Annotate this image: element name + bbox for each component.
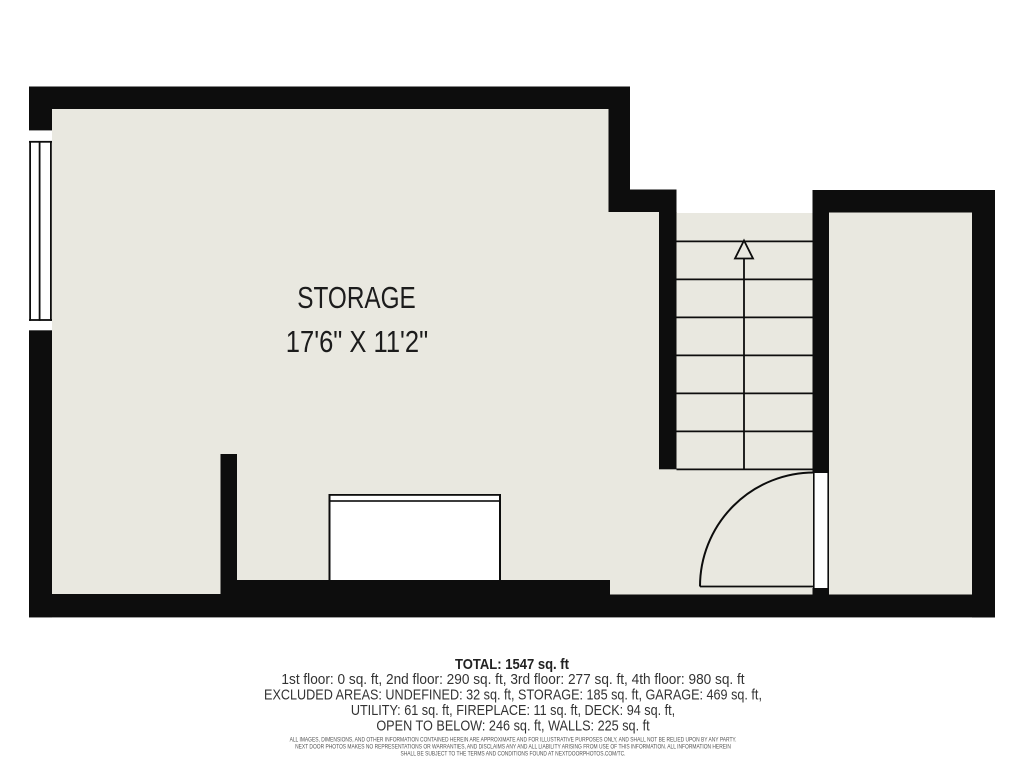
svg-text:TOTAL: 1547 sq. ft: TOTAL: 1547 sq. ft — [455, 655, 569, 672]
svg-text:OPEN TO BELOW: 246 sq. ft, WAL: OPEN TO BELOW: 246 sq. ft, WALLS: 225 sq… — [376, 716, 649, 733]
svg-text:ALL IMAGES, DIMENSIONS, AND OT: ALL IMAGES, DIMENSIONS, AND OTHER INFORM… — [290, 737, 737, 744]
svg-text:SHALL BE SUBJECT TO THE TERMS: SHALL BE SUBJECT TO THE TERMS AND CONDIT… — [400, 751, 625, 758]
svg-text:NEXT DOOR PHOTOS MAKES NO REPR: NEXT DOOR PHOTOS MAKES NO REPRESENTATION… — [295, 744, 731, 751]
svg-text:17'6" X 11'2": 17'6" X 11'2" — [286, 325, 428, 360]
svg-text:STORAGE: STORAGE — [297, 280, 416, 314]
